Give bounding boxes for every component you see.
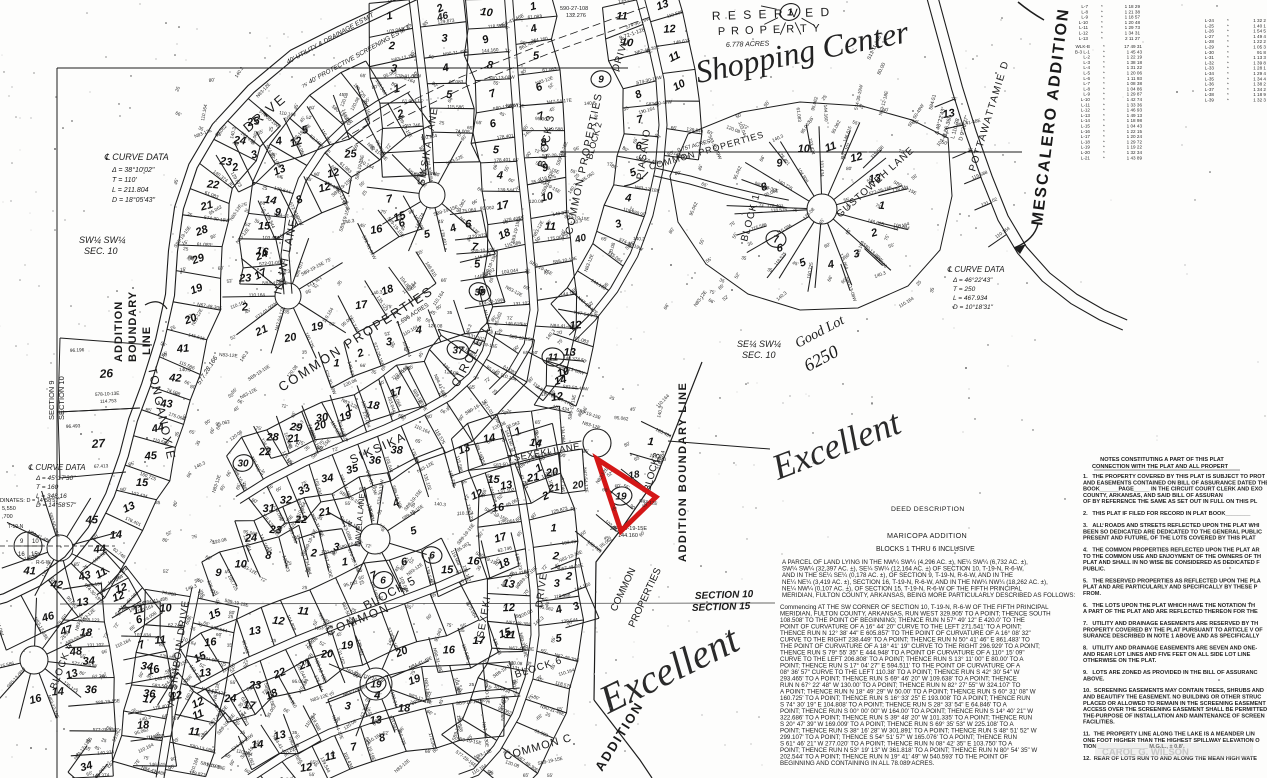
- svg-text:*: *: [1101, 36, 1103, 41]
- svg-text:14: 14: [109, 529, 122, 542]
- svg-text:65': 65': [403, 346, 410, 352]
- svg-text:3: 3: [553, 578, 560, 590]
- svg-text:ABOVE.: ABOVE.: [1083, 676, 1105, 682]
- svg-text:Δ = 45°17'30": Δ = 45°17'30": [35, 474, 76, 482]
- svg-text:*: *: [1227, 98, 1229, 103]
- svg-text:110.164: 110.164: [457, 510, 474, 516]
- svg-text:L-8: L-8: [1083, 86, 1090, 91]
- svg-text:1 49 4: 1 49 4: [1253, 34, 1266, 39]
- svg-text:91 8: 91 8: [1257, 50, 1266, 55]
- svg-text:*: *: [1103, 134, 1105, 139]
- svg-text:L-21: L-21: [1081, 155, 1091, 160]
- svg-text:1 39 8: 1 39 8: [1253, 60, 1266, 65]
- svg-text:80': 80': [115, 611, 122, 618]
- svg-text:72': 72': [137, 710, 143, 715]
- svg-text:1 54 5: 1 54 5: [1253, 29, 1266, 34]
- svg-text:15: 15: [441, 564, 455, 576]
- svg-text:2 11 27: 2 11 27: [1125, 36, 1140, 41]
- svg-text:75': 75': [386, 304, 393, 309]
- svg-text:B-3 L-1: B-3 L-1: [1075, 49, 1091, 54]
- svg-text:72': 72': [507, 315, 514, 321]
- svg-text:80': 80': [208, 77, 215, 83]
- svg-text:T = 160: T = 160: [36, 484, 59, 491]
- svg-text:*: *: [1103, 129, 1105, 134]
- svg-text:L-25: L-25: [1205, 23, 1215, 28]
- svg-text:2: 2: [388, 40, 396, 52]
- svg-text:16: 16: [204, 636, 218, 650]
- svg-text:66': 66': [360, 363, 366, 368]
- svg-text:37: 37: [452, 346, 464, 357]
- svg-text:L-15: L-15: [1081, 124, 1091, 129]
- svg-text:1 43 89: 1 43 89: [1127, 155, 1143, 160]
- svg-text:80': 80': [846, 166, 852, 171]
- svg-text:80': 80': [674, 170, 681, 176]
- svg-text:1 40 1: 1 40 1: [1253, 23, 1266, 28]
- svg-text:L-11: L-11: [1079, 25, 1088, 30]
- svg-text:1 22 15: 1 22 15: [1127, 129, 1143, 134]
- svg-text:35: 35: [155, 500, 161, 505]
- svg-text:15: 15: [136, 477, 149, 489]
- svg-text:10. SCREENING EASEMENTS MAY C: 10. SCREENING EASEMENTS MAY CONTAIN TREE…: [1083, 688, 1264, 694]
- svg-text:55': 55': [556, 706, 563, 712]
- svg-text:139.544: 139.544: [497, 187, 514, 192]
- svg-text:103.434: 103.434: [819, 160, 825, 177]
- svg-text:L-30: L-30: [1205, 50, 1215, 55]
- svg-text:75': 75': [255, 426, 262, 432]
- svg-text:60': 60': [216, 632, 222, 637]
- svg-text:L-17: L-17: [1081, 134, 1091, 139]
- svg-text:L-38: L-38: [1205, 92, 1215, 97]
- svg-text:60': 60': [308, 105, 315, 112]
- svg-text:DINATES: D = 14°58'57": DINATES: D = 14°58'57": [0, 498, 60, 504]
- svg-text:131.102: 131.102: [87, 642, 105, 648]
- svg-text:WLK-B: WLK-B: [1075, 44, 1090, 49]
- svg-text:67.413: 67.413: [94, 463, 109, 469]
- svg-text:*: *: [1103, 155, 1105, 160]
- svg-text:℄ CURVE DATA: ℄ CURVE DATA: [28, 463, 86, 472]
- svg-text:AND EASEMENTS CONTAINED ON BIL: AND EASEMENTS CONTAINED ON BILL OF ASSUR…: [1083, 480, 1267, 486]
- svg-text:25: 25: [240, 730, 246, 735]
- svg-text:BEEN SO DEDICATED ARE DEDICATE: BEEN SO DEDICATED ARE DEDICATED TO THE G…: [1083, 529, 1262, 535]
- svg-text:*: *: [1103, 49, 1105, 54]
- svg-text:115.586: 115.586: [447, 104, 464, 109]
- svg-text:L-9: L-9: [1081, 15, 1088, 20]
- svg-text:L = 467.934: L = 467.934: [953, 295, 988, 302]
- svg-text:*: *: [1227, 45, 1229, 50]
- svg-text:14: 14: [529, 437, 543, 450]
- svg-text:103.434: 103.434: [134, 632, 151, 637]
- svg-text:25: 25: [482, 660, 488, 665]
- svg-text:BLOCKS 1 THRU 6 INCLUSIVE: BLOCKS 1 THRU 6 INCLUSIVE: [876, 546, 975, 553]
- svg-text:28: 28: [265, 431, 279, 443]
- svg-text:1: 1: [647, 436, 654, 449]
- svg-text:11: 11: [616, 11, 627, 23]
- svg-text:65': 65': [145, 407, 152, 414]
- svg-text:5,550: 5,550: [2, 506, 16, 512]
- svg-text:*: *: [1103, 65, 1105, 70]
- svg-text:45': 45': [359, 223, 366, 230]
- svg-text:*: *: [1227, 29, 1229, 34]
- svg-text:2: 2: [564, 570, 572, 583]
- svg-text:ADDITION BOUNDARY LINE: ADDITION BOUNDARY LINE: [677, 382, 689, 562]
- svg-text:*: *: [1227, 76, 1229, 81]
- svg-text:BOUNDARY: BOUNDARY: [127, 291, 139, 362]
- svg-text:55': 55': [541, 648, 547, 654]
- svg-text:L-16: L-16: [1081, 129, 1091, 134]
- svg-text:17 49 31: 17 49 31: [1124, 44, 1142, 49]
- svg-text:1 29 4: 1 29 4: [1253, 71, 1266, 76]
- svg-text:36: 36: [85, 684, 98, 696]
- svg-text:R-6-W: R-6-W: [36, 560, 51, 566]
- svg-text:1 34 2: 1 34 2: [1253, 87, 1266, 92]
- svg-text:L-7: L-7: [1081, 4, 1088, 9]
- svg-text:36: 36: [143, 688, 157, 701]
- svg-text:34: 34: [321, 472, 335, 485]
- svg-text:95.062: 95.062: [535, 116, 550, 122]
- svg-text:L-39: L-39: [1205, 98, 1215, 103]
- svg-text:144.160: 144.160: [823, 104, 829, 122]
- svg-text:PRESENT AND FUTURE, OF THE LOT: PRESENT AND FUTURE, OF THE LOTS COVERED …: [1083, 536, 1256, 542]
- svg-text:55': 55': [230, 680, 236, 685]
- svg-text:11. THE PROPERTY LINE ALONG T: 11. THE PROPERTY LINE ALONG THE LAKE IS …: [1083, 732, 1255, 738]
- svg-text:10: 10: [798, 143, 811, 155]
- svg-text:1 28 1: 1 28 1: [1253, 66, 1266, 71]
- svg-text:L-10: L-10: [1079, 20, 1089, 25]
- svg-text:61.083: 61.083: [402, 98, 417, 103]
- svg-text:L-32: L-32: [1205, 60, 1215, 65]
- svg-text:34: 34: [140, 660, 153, 673]
- svg-text:PLAT AND ARE PARTICULARLY AND: PLAT AND ARE PARTICULARLY AND SPECIFICAL…: [1083, 585, 1258, 591]
- svg-text:66': 66': [162, 713, 169, 720]
- svg-text:*: *: [1101, 4, 1103, 9]
- svg-text:62.746: 62.746: [406, 123, 421, 129]
- svg-text:25: 25: [183, 246, 189, 252]
- svg-text:12: 12: [272, 615, 285, 628]
- svg-text:3: 3: [441, 33, 448, 45]
- svg-text:SEC. 10: SEC. 10: [84, 246, 118, 256]
- svg-text:75': 75': [709, 289, 716, 295]
- svg-text:AND REAR LOT LINES AND FIVE FE: AND REAR LOT LINES AND FIVE FEET ON ALL …: [1083, 652, 1251, 658]
- svg-text:*: *: [1227, 87, 1229, 92]
- svg-text:41: 41: [22, 565, 36, 578]
- svg-text:45': 45': [474, 288, 481, 294]
- svg-text:35: 35: [968, 148, 974, 154]
- svg-text:1 29 87: 1 29 87: [1127, 92, 1143, 97]
- svg-text:AND BEAUTIFY THE EASEMENT. NO: AND BEAUTIFY THE EASEMENT. NO BUILDING O…: [1083, 695, 1261, 701]
- svg-text:1 34 4: 1 34 4: [1253, 76, 1266, 81]
- svg-text:12: 12: [502, 602, 515, 615]
- svg-text:SECTION 10: SECTION 10: [695, 589, 754, 602]
- svg-text:SE¼ SW¼: SE¼ SW¼: [737, 339, 782, 349]
- svg-text:60': 60': [274, 235, 281, 241]
- svg-text:L-19: L-19: [1081, 145, 1091, 150]
- svg-text:146.615: 146.615: [149, 762, 166, 767]
- svg-text:25: 25: [439, 120, 445, 126]
- svg-text:1 32 3: 1 32 3: [1253, 98, 1266, 103]
- svg-text:42: 42: [49, 579, 63, 592]
- svg-text:1 45 43: 1 45 43: [1127, 49, 1143, 54]
- svg-text:L-18: L-18: [1081, 139, 1091, 144]
- svg-text:55': 55': [345, 501, 351, 506]
- svg-text:L-29: L-29: [1205, 45, 1215, 50]
- svg-text:*: *: [1103, 108, 1105, 113]
- svg-text:COUNTY, ARKANSAS, AND SAID BIL: COUNTY, ARKANSAS, AND SAID BILL OF ASSUR…: [1083, 493, 1223, 499]
- svg-text:*: *: [1103, 55, 1105, 60]
- svg-text:ACCESS OVER THE SCREENING EASE: ACCESS OVER THE SCREENING EASEMENT SHALL…: [1083, 707, 1267, 713]
- svg-text:65': 65': [73, 561, 80, 568]
- svg-text:1 20 06: 1 20 06: [1127, 71, 1143, 76]
- svg-text:*: *: [1103, 118, 1105, 123]
- svg-text:45': 45': [438, 219, 444, 224]
- svg-text:*: *: [1101, 31, 1103, 36]
- svg-text:25: 25: [228, 614, 234, 619]
- svg-text:45': 45': [630, 406, 637, 412]
- svg-text:18: 18: [80, 627, 94, 640]
- svg-text:65': 65': [359, 486, 366, 492]
- svg-text:*: *: [1103, 60, 1105, 65]
- svg-text:30: 30: [237, 459, 249, 470]
- svg-text:1 46 93: 1 46 93: [1127, 108, 1143, 113]
- svg-text:*: *: [1227, 92, 1229, 97]
- svg-text:35: 35: [292, 730, 298, 735]
- svg-text:16: 16: [443, 644, 456, 656]
- svg-text:FACILITIES.: FACILITIES.: [1083, 720, 1115, 726]
- svg-text:96.196: 96.196: [70, 347, 85, 353]
- svg-text:16: 16: [255, 245, 269, 259]
- svg-text:SEC. 10: SEC. 10: [742, 350, 776, 360]
- svg-text:3: 3: [344, 700, 351, 712]
- svg-text:20: 20: [571, 479, 585, 492]
- svg-text:590-27-108: 590-27-108: [560, 6, 588, 12]
- svg-text:140.3: 140.3: [633, 236, 645, 242]
- svg-text:35: 35: [459, 628, 465, 634]
- svg-text:2. THIS PLAT IF FILED FOR RE: 2. THIS PLAT IF FILED FOR RECORD IN PLAT…: [1083, 511, 1251, 517]
- svg-text:SW¼ SW¼: SW¼ SW¼: [79, 235, 126, 245]
- svg-text:L-9: L-9: [1083, 92, 1090, 97]
- svg-text:21: 21: [547, 482, 561, 495]
- svg-text:22: 22: [205, 178, 219, 191]
- svg-text:140.3: 140.3: [584, 100, 596, 106]
- svg-text:*: *: [1227, 23, 1229, 28]
- svg-text:65': 65': [467, 125, 474, 131]
- svg-text:41: 41: [175, 342, 189, 355]
- svg-text:114.753: 114.753: [100, 398, 117, 404]
- svg-text:25: 25: [343, 437, 349, 442]
- svg-text:*: *: [1227, 39, 1229, 44]
- svg-text:1 32 34: 1 32 34: [1127, 150, 1143, 155]
- svg-text:NOTES CONSTITUTING A PART OF T: NOTES CONSTITUTING A PART OF THIS PLAT: [1100, 457, 1224, 463]
- svg-text:140.3: 140.3: [179, 367, 191, 372]
- svg-text:7. UTILITY AND DRAINAGE EASE: 7. UTILITY AND DRAINAGE EASEMENTS ARE RE…: [1083, 621, 1258, 627]
- svg-text:11: 11: [297, 605, 310, 618]
- svg-text:1 08 38: 1 08 38: [1127, 81, 1143, 86]
- svg-text:52': 52': [245, 222, 251, 227]
- svg-text:1 04 43: 1 04 43: [1127, 124, 1143, 129]
- svg-text:17: 17: [472, 635, 485, 647]
- svg-text:L-31: L-31: [1205, 55, 1215, 60]
- svg-text:BOOK______PAGE_____ IN THE CIR: BOOK______PAGE_____ IN THE CIRCUIT COURT…: [1083, 487, 1263, 493]
- svg-text:118.575: 118.575: [771, 207, 788, 213]
- svg-text:90': 90': [882, 107, 889, 114]
- svg-text:45': 45': [100, 588, 107, 595]
- svg-text:*: *: [1227, 34, 1229, 39]
- svg-text:60': 60': [217, 265, 224, 271]
- svg-text:13: 13: [248, 624, 262, 638]
- svg-text:L = 211.804: L = 211.804: [112, 187, 149, 194]
- svg-text:6. THE LOTS UPON THE PLAT WH: 6. THE LOTS UPON THE PLAT WHICH HAVE THE…: [1083, 603, 1255, 609]
- svg-text:25: 25: [302, 585, 308, 590]
- svg-text:95.062: 95.062: [480, 205, 495, 211]
- svg-text:*: *: [1227, 71, 1229, 76]
- svg-text:L-13: L-13: [1081, 113, 1091, 118]
- svg-text:5. THE RESERVED PROPERTIES A: 5. THE RESERVED PROPERTIES AS REFLECTED …: [1083, 578, 1261, 584]
- svg-text:9. LOTS ARE ZONED AS PROVIDE: 9. LOTS ARE ZONED AS PROVIDED IN THE BIL…: [1083, 670, 1258, 676]
- svg-text:55': 55': [309, 772, 315, 777]
- svg-text:SECTION 10: SECTION 10: [57, 376, 66, 420]
- svg-text:35: 35: [447, 310, 453, 315]
- svg-text:9: 9: [598, 75, 604, 86]
- svg-text:61.083: 61.083: [449, 79, 464, 84]
- svg-text:1 20 24: 1 20 24: [1127, 134, 1143, 139]
- svg-text:CAROL G. WILSON: CAROL G. WILSON: [1102, 747, 1189, 758]
- svg-text:*: *: [1227, 82, 1229, 87]
- svg-text:96.493: 96.493: [66, 423, 81, 429]
- svg-text:L-20: L-20: [1081, 150, 1091, 155]
- svg-text:1: 1: [550, 522, 556, 534]
- svg-text:90': 90': [640, 212, 646, 218]
- svg-text:℄ CURVE DATA: ℄ CURVE DATA: [947, 265, 1005, 274]
- svg-text:45: 45: [143, 450, 158, 463]
- svg-text:1: 1: [341, 556, 348, 569]
- svg-text:12: 12: [663, 23, 676, 36]
- svg-text:*: *: [1101, 20, 1103, 25]
- svg-text:65': 65': [601, 236, 608, 242]
- svg-text:52': 52': [382, 730, 389, 736]
- svg-text:D = 18°05'43": D = 18°05'43": [112, 196, 156, 204]
- svg-text:178.401: 178.401: [494, 157, 512, 163]
- svg-text:L-11: L-11: [1081, 102, 1090, 107]
- svg-text:L-10: L-10: [1081, 97, 1091, 102]
- svg-text:1 38 2: 1 38 2: [1253, 82, 1266, 87]
- svg-text:15: 15: [31, 552, 38, 558]
- svg-text:SECTION 15: SECTION 15: [692, 601, 751, 614]
- svg-text:L-3: L-3: [1083, 60, 1090, 65]
- svg-text:65': 65': [523, 350, 530, 355]
- svg-text:OTHERWISE ON THE PLAT.: OTHERWISE ON THE PLAT.: [1083, 658, 1157, 664]
- svg-text:*: *: [1103, 145, 1105, 150]
- svg-text:A PART OF THE PLAT AND ARE REF: A PART OF THE PLAT AND ARE REFLECTED THE…: [1083, 609, 1258, 615]
- svg-text:1. THE PROPERTY COVERED BY T: 1. THE PROPERTY COVERED BY THIS PLAT IS …: [1083, 474, 1266, 480]
- svg-text:L-12: L-12: [1079, 31, 1089, 36]
- svg-text:3. ALL ROADS AND STREETS REF: 3. ALL ROADS AND STREETS REFLECTED UPON …: [1083, 523, 1260, 529]
- svg-text:*: *: [1101, 15, 1103, 20]
- svg-text:℄ CURVE DATA: ℄ CURVE DATA: [104, 152, 169, 162]
- svg-text:55': 55': [547, 773, 553, 778]
- svg-text:35: 35: [271, 638, 277, 643]
- svg-text:DEED DESCRIPTION: DEED DESCRIPTION: [891, 506, 965, 513]
- svg-text:FROM.: FROM.: [1083, 591, 1101, 597]
- svg-text:L-33: L-33: [1205, 66, 1215, 71]
- svg-text:110.164: 110.164: [249, 292, 266, 297]
- svg-text:*: *: [1101, 25, 1103, 30]
- svg-text:L-24: L-24: [1205, 18, 1215, 23]
- svg-text:15': 15': [417, 98, 424, 105]
- svg-text:17: 17: [242, 699, 256, 712]
- svg-text:SECTION 9: SECTION 9: [47, 380, 56, 420]
- svg-text:*: *: [1103, 97, 1105, 102]
- svg-text:1 33 36: 1 33 36: [1127, 102, 1143, 107]
- svg-text:19: 19: [341, 639, 355, 652]
- svg-text:*: *: [1103, 139, 1105, 144]
- svg-text:*: *: [1103, 92, 1105, 97]
- svg-text:25: 25: [469, 682, 475, 687]
- svg-text:PLACED OR ALLOWED TO REMAIN IN: PLACED OR ALLOWED TO REMAIN IN THE SCREE…: [1083, 701, 1266, 707]
- svg-text:16: 16: [18, 552, 25, 558]
- svg-text:26: 26: [98, 366, 114, 381]
- svg-text:L-13: L-13: [1079, 36, 1089, 41]
- svg-text:1 49 13: 1 49 13: [1127, 113, 1143, 118]
- svg-text:80': 80': [912, 119, 919, 125]
- svg-text:N83-12E: N83-12E: [506, 103, 525, 108]
- svg-text:90': 90': [314, 172, 321, 179]
- svg-text:L-6: L-6: [1083, 76, 1090, 81]
- svg-text:OF BY REFERENCE THE SAME AS SE: OF BY REFERENCE THE SAME AS SET OUT IN F…: [1083, 499, 1258, 505]
- svg-text:T = 110': T = 110': [112, 177, 137, 184]
- svg-text:66': 66': [582, 406, 588, 413]
- svg-text:80': 80': [426, 414, 433, 421]
- svg-text:66': 66': [593, 113, 599, 120]
- svg-text:25: 25: [792, 207, 798, 213]
- svg-text:120.08: 120.08: [529, 199, 544, 204]
- svg-text:*: *: [1103, 124, 1105, 129]
- svg-text:10: 10: [32, 539, 39, 545]
- svg-text:BEGINNING AND CONTAINING IN AL: BEGINNING AND CONTAINING IN ALL 78.089 A…: [780, 760, 935, 767]
- svg-text:65': 65': [535, 419, 542, 425]
- svg-text:Δ = 46°22'43": Δ = 46°22'43": [952, 276, 993, 284]
- svg-text:*: *: [1227, 18, 1229, 23]
- svg-text:L-27: L-27: [1205, 34, 1215, 39]
- svg-text:Δ = 38°10'02": Δ = 38°10'02": [111, 166, 155, 174]
- svg-text:*: *: [1103, 76, 1105, 81]
- svg-text:SURANCE DESCRIBED IN NOTE 1 AB: SURANCE DESCRIBED IN NOTE 1 ABOVE AND AS…: [1083, 634, 1260, 640]
- svg-text:55': 55': [521, 322, 527, 327]
- svg-text:61.083: 61.083: [197, 242, 212, 248]
- svg-text:1 18 9: 1 18 9: [1253, 92, 1266, 97]
- svg-text:*: *: [1227, 60, 1229, 65]
- svg-text:65': 65': [523, 772, 530, 778]
- svg-text:65': 65': [476, 120, 482, 125]
- svg-text:L-37: L-37: [1205, 87, 1215, 92]
- svg-text:*: *: [1227, 66, 1229, 71]
- svg-text:80': 80': [159, 642, 166, 648]
- svg-text:*: *: [1103, 150, 1105, 155]
- svg-text:*: *: [1227, 55, 1229, 60]
- svg-text:*: *: [1227, 50, 1229, 55]
- svg-text:L-2: L-2: [1083, 55, 1090, 60]
- svg-text:*: *: [1103, 102, 1105, 107]
- svg-text:1 22 19: 1 22 19: [1127, 55, 1143, 60]
- svg-text:1 18 98: 1 18 98: [1127, 118, 1143, 123]
- svg-text:42: 42: [168, 372, 182, 385]
- svg-text:PROPERTY COVERED BY THE PLAT P: PROPERTY COVERED BY THE PLAT PURSUANT TO…: [1083, 627, 1263, 633]
- svg-text:L-4: L-4: [1083, 65, 1090, 70]
- svg-text:LINE: LINE: [141, 326, 153, 355]
- svg-text:TO THE COMMON USE AND ENJOYMEN: TO THE COMMON USE AND ENJOYMENT OF THE O…: [1083, 554, 1261, 560]
- svg-text:65': 65': [469, 384, 476, 391]
- svg-text:1 20 48: 1 20 48: [1125, 20, 1141, 25]
- svg-text:MARICOPA ADDITION: MARICOPA ADDITION: [887, 531, 967, 540]
- svg-text:MERIDIAN, FULTON COUNTY, ARKAN: MERIDIAN, FULTON COUNTY, ARKANSAS, BEING…: [782, 592, 1075, 599]
